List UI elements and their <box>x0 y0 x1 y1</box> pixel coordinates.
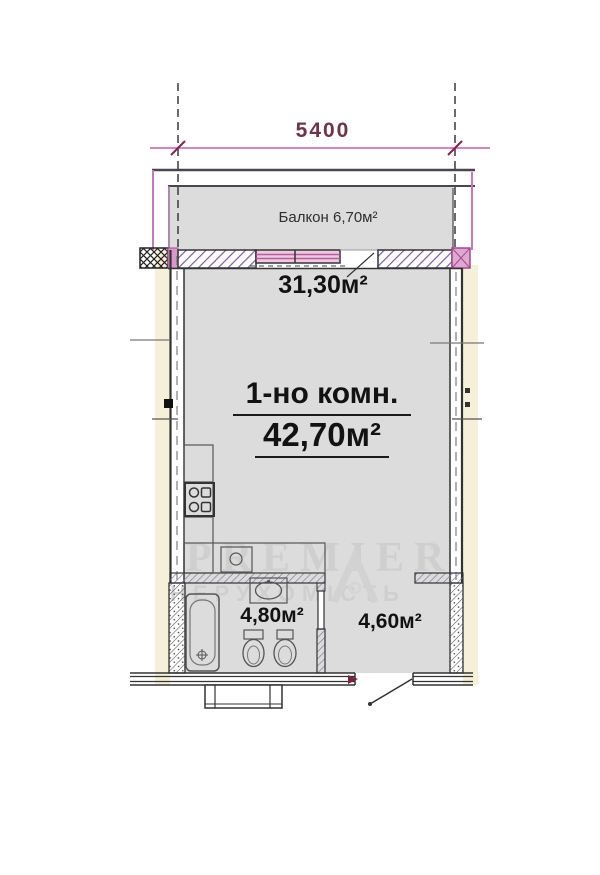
floor-plan: PREMIER ® НЕРУХОМІСТЬ <box>0 0 600 875</box>
dimension-5400 <box>150 83 490 253</box>
toilet-icon <box>243 630 264 667</box>
shaft-box <box>205 685 282 708</box>
kitchen-counter <box>184 445 325 573</box>
bottom-wall <box>130 673 473 708</box>
balcony-area-label: Балкон 6,70м² <box>248 209 408 226</box>
wall-end-block <box>452 248 470 268</box>
bathroom-area-label: 4,80м² <box>222 604 322 628</box>
bathtub-icon <box>186 594 219 671</box>
window-icon <box>250 250 345 266</box>
kitchen-sink-icon <box>221 547 252 572</box>
cross-hatched-wall-end <box>140 248 168 268</box>
room-type-label: 1-но комн. <box>233 377 411 416</box>
bidet-icon <box>274 630 296 667</box>
entrance-door-icon <box>348 675 412 706</box>
left-wall <box>130 250 185 673</box>
hallway-area-label: 4,60м² <box>340 610 440 634</box>
stove-icon <box>185 483 214 516</box>
dimension-label: 5400 <box>273 119 373 143</box>
room-area-label: 31,30м² <box>248 271 398 300</box>
total-area-label: 42,70м² <box>255 416 389 458</box>
